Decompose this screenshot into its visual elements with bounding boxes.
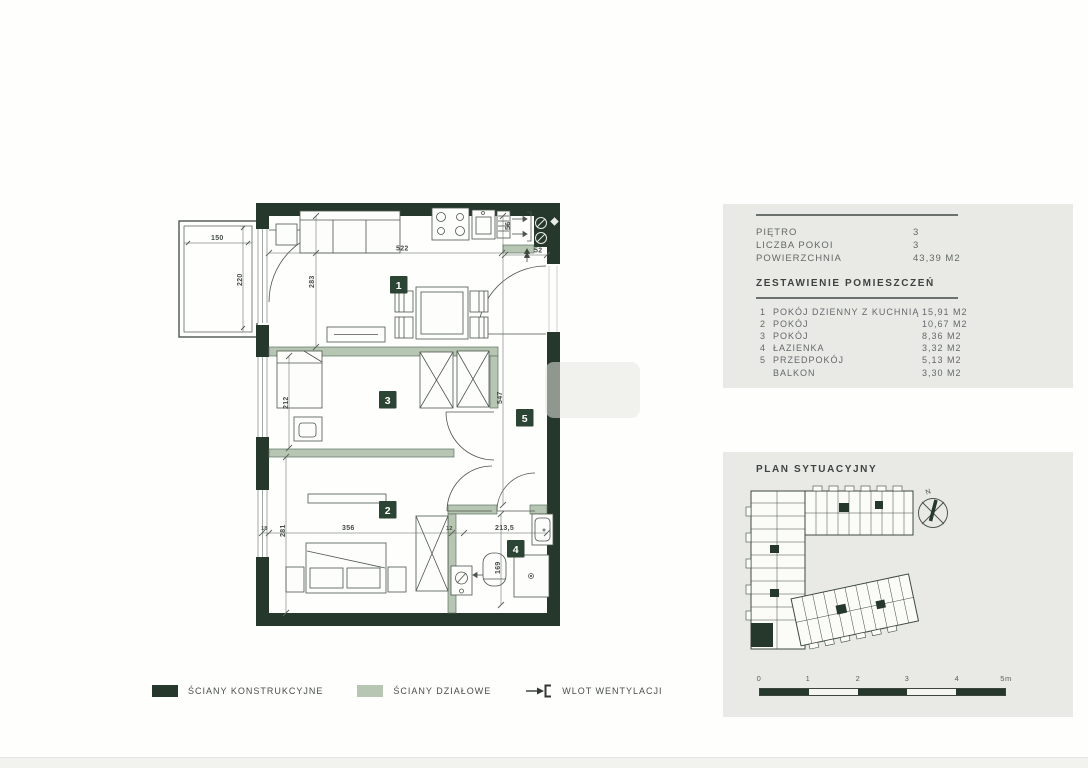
partition-wall-swatch	[357, 685, 383, 697]
legend-item-partition-walls: ŚCIANY DZIAŁOWE	[357, 685, 491, 697]
room-row: 2 POKÓJ 10,67 M2	[760, 318, 1059, 330]
room-row: BALKON 3,30 M2	[760, 366, 1059, 378]
divider	[756, 297, 958, 299]
dim-522: 522	[396, 246, 409, 253]
side-table	[276, 224, 297, 245]
dim-balcony-height: 220	[237, 273, 244, 286]
legend-label: ŚCIANY KONSTRUKCYJNE	[188, 686, 323, 696]
dim-213-5: 213,5	[495, 525, 514, 532]
legend-label: ŚCIANY DZIAŁOWE	[393, 686, 491, 696]
scale-tick: 0	[757, 674, 762, 683]
wardrobe-room3	[420, 351, 489, 408]
site-bottom-wing	[791, 574, 919, 651]
legend: ŚCIANY KONSTRUKCYJNE ŚCIANY DZIAŁOWE WLO…	[152, 684, 663, 698]
dim-balcony-width: 150	[211, 235, 224, 242]
stove	[432, 208, 469, 240]
room-badge-bathroom: 4	[507, 540, 525, 558]
desk-room3	[294, 417, 322, 441]
scale-segment	[809, 689, 858, 695]
highlighted-unit	[751, 623, 773, 647]
svg-text:1: 1	[396, 280, 402, 292]
bottom-strip	[0, 757, 1088, 768]
info-row-area: POWIERZCHNIA 43,39 M2	[756, 252, 1053, 265]
rooms-heading: ZESTAWIENIE POMIESZCZEŃ	[756, 278, 935, 289]
floorplan-drawing: 150 220	[150, 190, 650, 650]
washbasin	[532, 514, 553, 545]
dim-56: 56	[505, 222, 512, 230]
dimension-ticks	[259, 213, 550, 616]
site-plan-panel: PLAN SYTUACYJNY	[723, 452, 1073, 717]
room-badge-bedroom2: 2	[379, 501, 397, 519]
dimension-lines	[259, 213, 550, 616]
area-value: 43,39 M2	[913, 253, 961, 264]
dim-52: 52	[534, 248, 542, 255]
scale-segment	[858, 689, 907, 695]
scale-tick: 3	[905, 674, 910, 683]
scale-segment	[760, 689, 809, 695]
room-count-value: 3	[913, 240, 919, 251]
compass-north-label: N	[925, 488, 932, 496]
vent-arrow-icon	[525, 684, 552, 698]
scale-bar	[759, 688, 1006, 696]
wardrobe-room2	[416, 516, 448, 591]
scale-tick: 1	[806, 674, 811, 683]
room-row: 4 ŁAZIENKA 3,32 M2	[760, 342, 1059, 354]
apartment-info-panel: PIĘTRO 3 LICZBA POKOI 3 POWIERZCHNIA 43,…	[723, 204, 1073, 388]
furniture	[276, 208, 558, 597]
site-plan-drawing: N	[743, 485, 973, 685]
room-badge-hall: 5	[516, 409, 534, 427]
room2-door	[447, 466, 492, 511]
entrance-frame	[549, 266, 557, 332]
site-plan-title: PLAN SYTUACYJNY	[756, 464, 877, 475]
scale-tick: 2	[856, 674, 861, 683]
room-badge-bedroom3: 3	[379, 391, 397, 409]
shower	[514, 555, 549, 597]
shelf-room2	[308, 494, 386, 503]
dining-table	[416, 287, 468, 339]
dim-169: 169	[495, 561, 502, 574]
room2-window	[255, 490, 269, 557]
room-row: 3 POKÓJ 8,36 M2	[760, 330, 1059, 342]
room-badge-living: 1	[390, 276, 408, 294]
scale-segment	[956, 689, 1005, 695]
scale-tick: 4	[955, 674, 960, 683]
dim-283: 283	[309, 275, 316, 288]
scale-labels: 0 1 2 3 4 5m	[723, 674, 1073, 684]
dim-18: 18	[261, 526, 268, 532]
dim-356: 356	[342, 525, 355, 532]
dim-12: 12	[446, 526, 452, 532]
room-count-label: LICZBA POKOI	[756, 240, 913, 251]
compass-icon: N	[919, 488, 948, 527]
svg-text:2: 2	[385, 505, 391, 517]
info-row-room-count: LICZBA POKOI 3	[756, 239, 1053, 252]
floorplan-page: 150 220	[0, 0, 1088, 768]
floor-label: PIĘTRO	[756, 227, 913, 238]
area-label: POWIERZCHNIA	[756, 253, 913, 264]
vent-duct-icon	[512, 212, 531, 241]
tv-cabinet	[327, 327, 385, 342]
sink	[472, 210, 495, 239]
room3-window	[255, 357, 269, 437]
scale-tick: 5m	[1000, 674, 1011, 683]
site-top-wing	[805, 486, 913, 535]
scale-segment	[907, 689, 956, 695]
floor-value: 3	[913, 227, 919, 238]
nightstand-right	[388, 567, 406, 592]
room-row: 5 PRZEDPOKÓJ 5,13 M2	[760, 354, 1059, 366]
room-row: 1 POKÓJ DZIENNY Z KUCHNIĄ 15,91 M2	[760, 306, 1059, 318]
legend-label: WLOT WENTYLACJI	[562, 686, 662, 696]
dim-547: 547	[497, 391, 504, 404]
structural-wall-swatch	[152, 685, 178, 697]
divider	[756, 214, 958, 216]
legend-item-structural-walls: ŚCIANY KONSTRUKCYJNE	[152, 685, 323, 697]
svg-text:5: 5	[522, 413, 528, 425]
dim-281: 281	[280, 524, 287, 537]
bed-room2	[306, 543, 386, 593]
room-list: 1 POKÓJ DZIENNY Z KUCHNIĄ 15,91 M2 2 POK…	[760, 306, 1059, 379]
legend-item-vent-inlet: WLOT WENTYLACJI	[525, 684, 662, 698]
dim-212: 212	[283, 396, 290, 409]
info-row-floor: PIĘTRO 3	[756, 226, 1053, 239]
svg-text:4: 4	[513, 544, 519, 556]
svg-text:3: 3	[385, 395, 391, 407]
watermark-blur	[545, 362, 640, 418]
balcony-window	[255, 229, 269, 323]
info-rows: PIĘTRO 3 LICZBA POKOI 3 POWIERZCHNIA 43,…	[756, 226, 1053, 266]
nightstand-left	[286, 567, 304, 592]
